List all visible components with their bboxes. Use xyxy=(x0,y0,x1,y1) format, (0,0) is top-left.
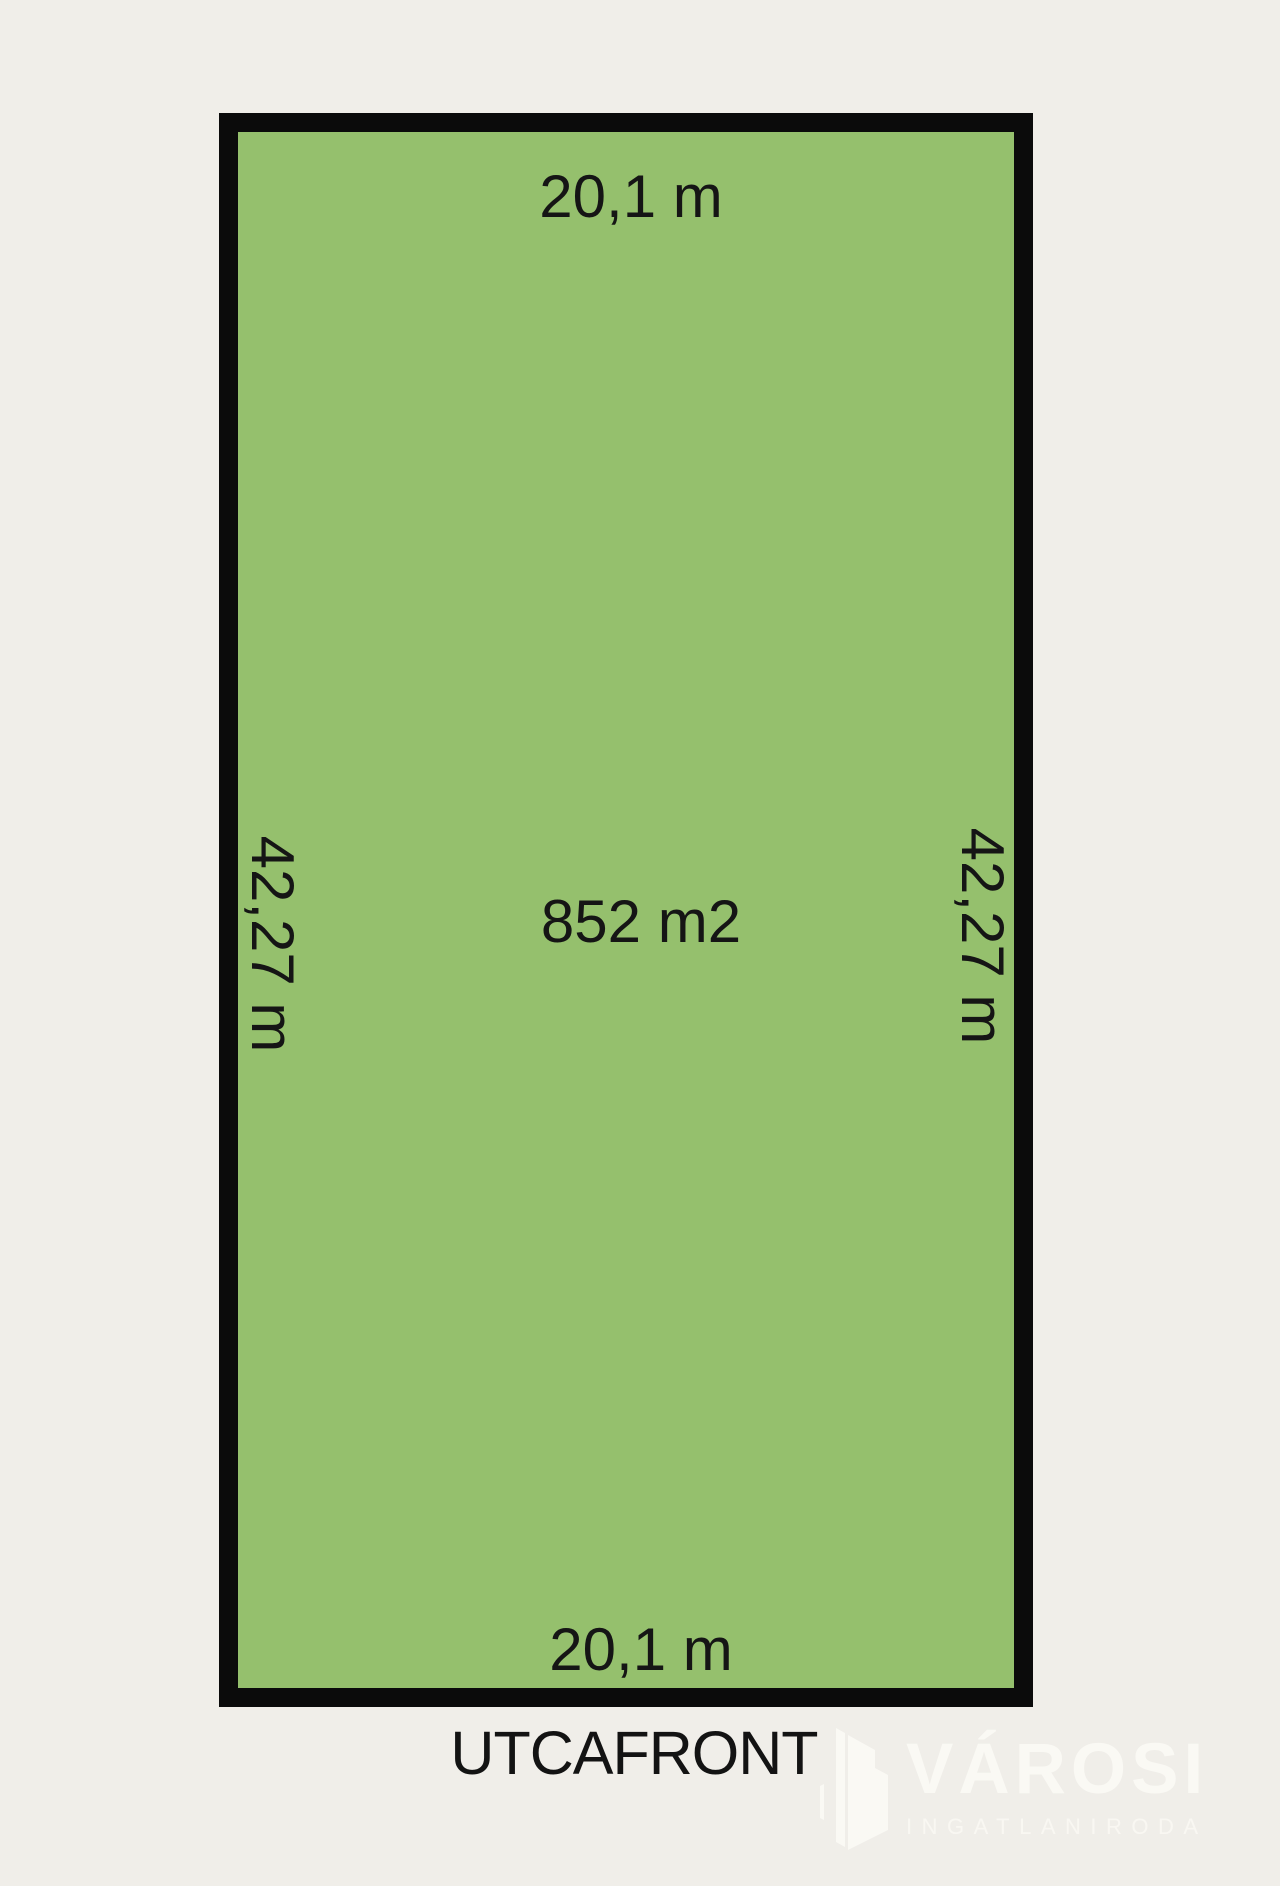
logo-text: VÁROSI INGATLANIRODA xyxy=(906,1734,1208,1840)
logo-subtitle: INGATLANIRODA xyxy=(906,1814,1208,1840)
street-front-label: UTCAFRONT xyxy=(450,1718,817,1788)
right-length-label: 42,27 m xyxy=(952,828,1012,1045)
plot-diagram: 20,1 m 852 m2 20,1 m 42,27 m 42,27 m UTC… xyxy=(0,0,1280,1886)
top-width-label: 20,1 m xyxy=(539,167,722,227)
left-length-label: 42,27 m xyxy=(242,836,302,1053)
agency-logo: VÁROSI INGATLANIRODA xyxy=(820,1722,1208,1852)
city-buildings-icon xyxy=(820,1722,890,1852)
logo-brand-name: VÁROSI xyxy=(906,1734,1208,1805)
area-label: 852 m2 xyxy=(541,892,741,952)
bottom-width-label: 20,1 m xyxy=(549,1620,732,1680)
